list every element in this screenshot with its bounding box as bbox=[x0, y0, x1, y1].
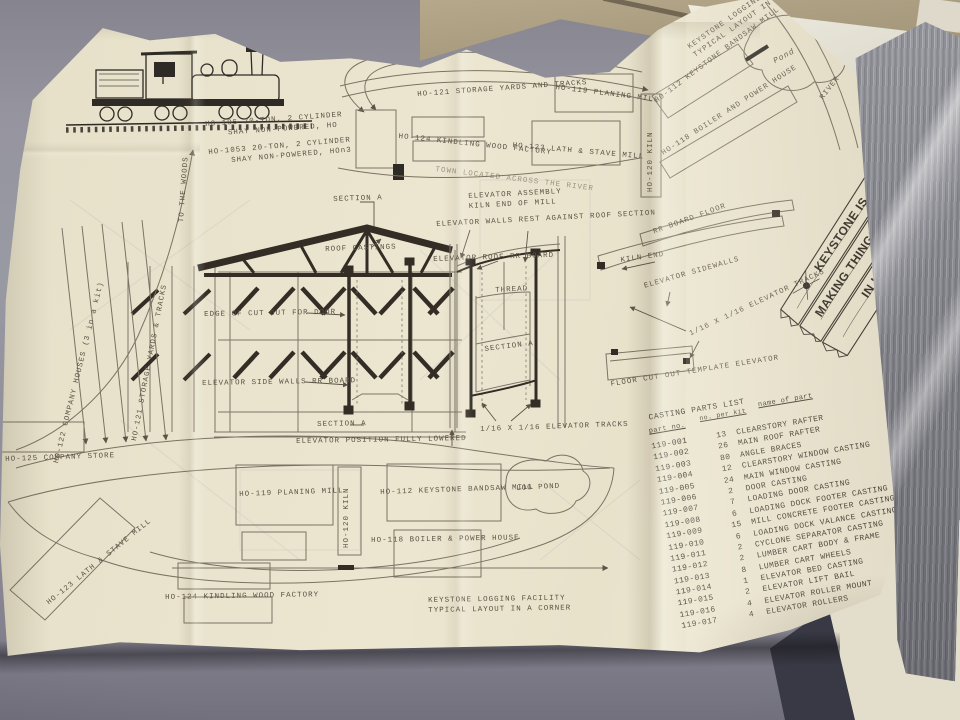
thread-label: THREAD bbox=[495, 284, 529, 296]
instruction-sheet: HO-105 20-TON, 2 CYLINDER SHAY NON-POWER… bbox=[0, 0, 960, 720]
photo-instruction-sheet: HO-105 20-TON, 2 CYLINDER SHAY NON-POWER… bbox=[0, 0, 960, 720]
leader-arrows bbox=[305, 202, 699, 446]
ghost-showthrough bbox=[70, 180, 640, 560]
kiln-end-drawing bbox=[597, 200, 794, 380]
parts-col-name: name of part bbox=[757, 392, 813, 409]
section-view-drawing bbox=[128, 228, 466, 437]
corner-caption: KEYSTONE LOGGING FACILITY TYPICAL LAYOUT… bbox=[428, 594, 571, 617]
valley-kiln-label: HO-120 KILN bbox=[646, 131, 656, 192]
section-a-bottom-label: SECTION A bbox=[317, 419, 367, 430]
parts-col-part-no: part no. bbox=[648, 422, 686, 436]
corner-kiln-label: HO-120 KILN bbox=[342, 487, 352, 548]
section-a-top-label: SECTION A bbox=[333, 193, 383, 205]
